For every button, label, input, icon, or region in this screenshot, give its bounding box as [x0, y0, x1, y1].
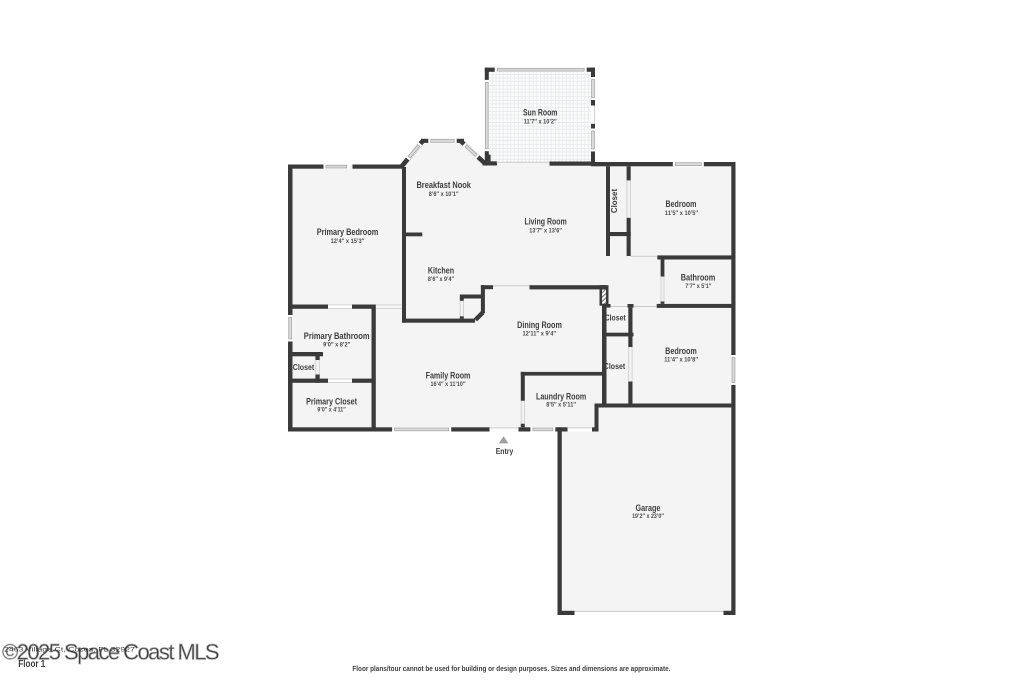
svg-text:8’5″ x 5’11″: 8’5″ x 5’11″ — [546, 401, 576, 408]
svg-text:8’6″ x 10’1″: 8’6″ x 10’1″ — [429, 191, 460, 198]
svg-text:Garage: Garage — [636, 503, 661, 513]
svg-text:Primary Bedroom: Primary Bedroom — [317, 227, 379, 237]
svg-text:11’7″ x 10’2″: 11’7″ x 10’2″ — [524, 118, 558, 125]
svg-text:Bedroom: Bedroom — [666, 199, 697, 209]
svg-text:Kitchen: Kitchen — [428, 265, 454, 275]
svg-text:Closet: Closet — [293, 362, 315, 372]
svg-text:Laundry Room: Laundry Room — [536, 392, 586, 402]
svg-text:11’5″ x 10’5″: 11’5″ x 10’5″ — [665, 210, 699, 217]
svg-text:12’11″ x 9’4″: 12’11″ x 9’4″ — [522, 330, 556, 337]
svg-text:Primary Closet: Primary Closet — [306, 396, 357, 406]
svg-text:Closet: Closet — [604, 361, 626, 371]
svg-text:Sun Room: Sun Room — [523, 108, 558, 118]
svg-text:Primary Bathroom: Primary Bathroom — [304, 331, 370, 341]
svg-text:8’6″ x 9’4″: 8’6″ x 9’4″ — [428, 276, 455, 283]
svg-text:Entry: Entry — [496, 446, 514, 456]
svg-text:2463 Village Ct, Cocoa, FL 329: 2463 Village Ct, Cocoa, FL 32927 — [4, 647, 135, 654]
svg-text:Closet: Closet — [605, 313, 626, 323]
svg-text:9’0″ x 4’11″: 9’0″ x 4’11″ — [317, 406, 346, 413]
svg-text:16’4″ x 11’10″: 16’4″ x 11’10″ — [431, 381, 466, 388]
svg-text:9’0″ x 8’2″: 9’0″ x 8’2″ — [323, 342, 351, 349]
svg-text:Floor 1: Floor 1 — [18, 659, 45, 670]
svg-text:11’4″ x 10’8″: 11’4″ x 10’8″ — [664, 356, 698, 363]
svg-text:12’4″ x 15’3″: 12’4″ x 15’3″ — [331, 238, 365, 245]
svg-text:Closet: Closet — [609, 189, 619, 213]
svg-text:Bedroom: Bedroom — [665, 346, 697, 356]
svg-text:Dining Room: Dining Room — [517, 320, 562, 330]
svg-text:Breakfast Nook: Breakfast Nook — [416, 180, 471, 190]
svg-text:7’7″ x 5’1″: 7’7″ x 5’1″ — [685, 283, 712, 290]
svg-text:13’7″ x 13’6″: 13’7″ x 13’6″ — [529, 227, 562, 234]
svg-text:Floor plans/tour cannot be use: Floor plans/tour cannot be used for buil… — [352, 666, 670, 673]
svg-text:Bathroom: Bathroom — [681, 272, 715, 282]
svg-text:Living Room: Living Room — [524, 217, 566, 227]
svg-text:19’2″ x 23’0″: 19’2″ x 23’0″ — [632, 513, 664, 520]
svg-text:Family Room: Family Room — [426, 371, 471, 381]
